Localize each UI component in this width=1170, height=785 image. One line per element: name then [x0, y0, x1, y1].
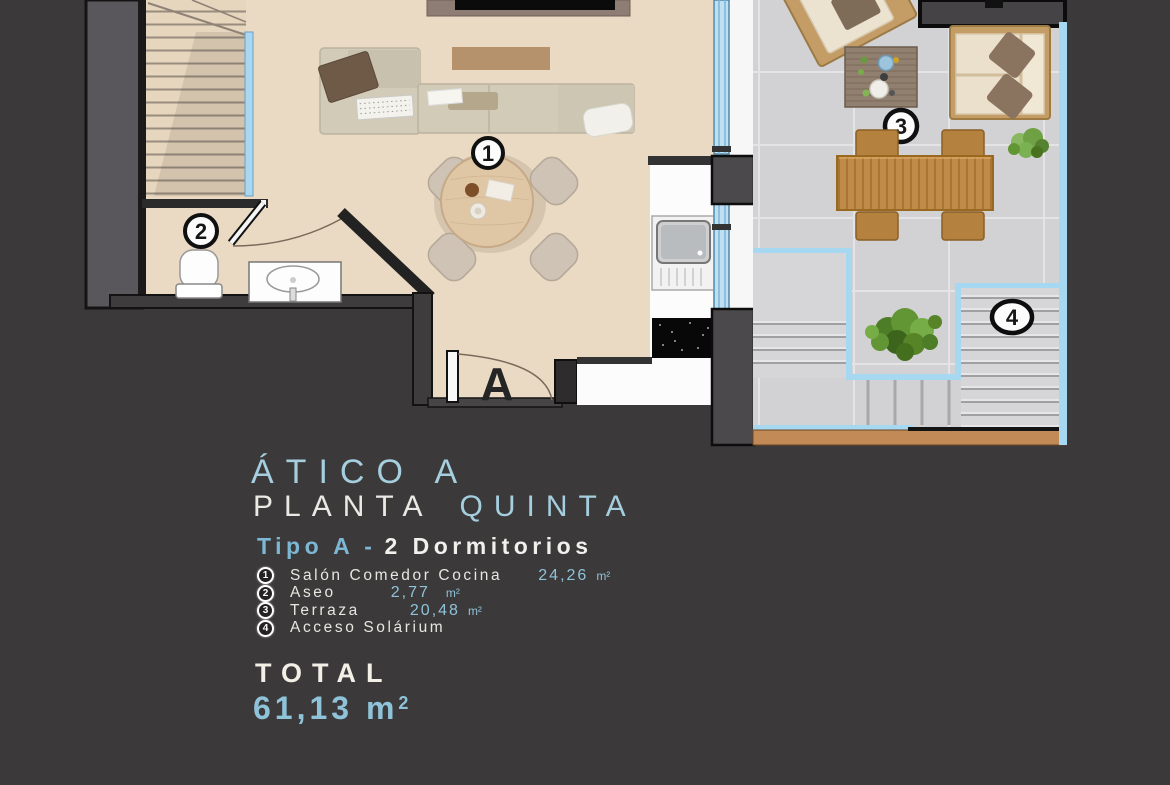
total-area-number: 61,13 m	[253, 690, 398, 726]
cooktop	[652, 318, 714, 358]
sink-vanity	[249, 262, 341, 302]
room-label-solarium: 4	[992, 301, 1032, 333]
legend-unit: m²	[596, 569, 610, 583]
tv-console	[427, 0, 630, 16]
coffee-table	[845, 47, 917, 107]
legend-item-aseo: 2 Aseo 2,77 m²	[257, 585, 610, 602]
subtitle-quinta: QUINTA	[459, 490, 636, 523]
legend-label: Salón Comedor Cocina	[290, 567, 502, 585]
side-table	[452, 47, 550, 70]
total-area-sup: 2	[398, 693, 412, 713]
page-subtitle: PLANTAQUINTA	[253, 490, 637, 524]
legend-area: 20,48	[410, 602, 460, 620]
legend-bullet-4: 4	[257, 620, 274, 637]
wall-left	[138, 0, 146, 306]
total-area-value: 61,13 m2	[253, 690, 412, 727]
svg-text:1: 1	[482, 141, 494, 166]
entrance: A	[428, 351, 577, 410]
legend-area: 24,26	[538, 567, 588, 585]
wall-jamb	[555, 360, 577, 403]
floor-plan-svg: 2 A	[0, 0, 1170, 450]
legend-unit: m²	[446, 586, 460, 600]
legend-bullet-1: 1	[257, 567, 274, 584]
legend-item-living: 1 Salón Comedor Cocina 24,26 m²	[257, 567, 610, 584]
legend-unit: m²	[468, 604, 482, 618]
page-title: ÁTICO A	[251, 453, 469, 492]
legend-bullet-3: 3	[257, 602, 274, 619]
terrace-balustrade-glass	[1059, 22, 1067, 445]
stair-railing-glass	[245, 32, 253, 196]
svg-text:2: 2	[195, 219, 207, 244]
terrace-sofa	[950, 26, 1050, 120]
legend-label: Terraza	[290, 602, 360, 620]
terrace-wood-edge	[753, 430, 1065, 445]
wall-bathroom-top	[142, 199, 268, 208]
wall-pillar-lower	[712, 309, 754, 445]
terrace: 3	[753, 0, 1067, 445]
sofa-throw-checkered	[356, 95, 413, 120]
wall-corner	[413, 293, 432, 405]
page: 2 A	[0, 0, 1170, 785]
svg-text:4: 4	[1006, 305, 1019, 330]
toilet	[176, 250, 222, 298]
wall-pillar-upper	[712, 156, 754, 204]
tv	[455, 0, 615, 10]
entrance-door	[447, 351, 458, 402]
glass-wall	[712, 0, 755, 445]
legend: 1 Salón Comedor Cocina 24,26 m² 2 Aseo 2…	[257, 567, 610, 637]
type-label-blue: Tipo A -	[257, 533, 376, 559]
legend-area: 2,77	[391, 584, 430, 602]
entrance-letter: A	[480, 358, 513, 410]
apartment-type: Tipo A -2 Dormitorios	[257, 533, 593, 560]
legend-item-terraza: 3 Terraza 20,48 m²	[257, 602, 610, 619]
total-label: TOTAL	[255, 658, 393, 689]
dining-table	[837, 156, 993, 210]
kitchen-sink	[652, 216, 715, 290]
legend-bullet-2: 2	[257, 585, 274, 602]
exterior-wall	[86, 0, 142, 308]
legend-item-solarium: 4 Acceso Solárium	[257, 620, 610, 637]
subtitle-planta: PLANTA	[253, 490, 433, 523]
room-label-aseo: 2	[185, 215, 217, 247]
legend-label: Acceso Solárium	[290, 619, 445, 637]
room-label-living: 1	[473, 138, 503, 168]
legend-label: Aseo	[290, 584, 336, 602]
type-label-white: 2 Dormitorios	[384, 533, 592, 559]
staircase	[146, 0, 253, 197]
